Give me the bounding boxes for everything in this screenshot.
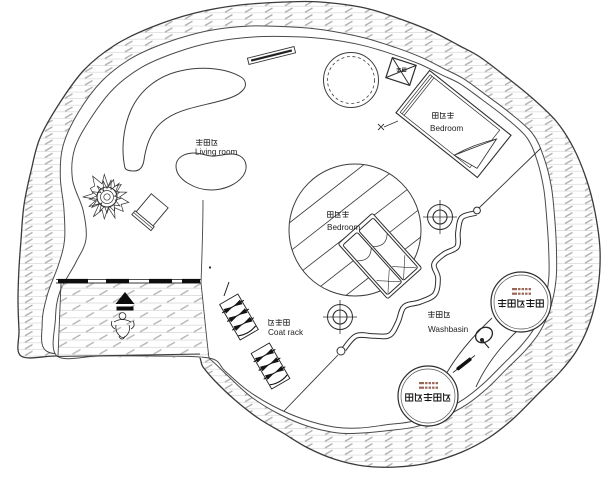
svg-text:Washbasin: Washbasin xyxy=(428,325,469,334)
svg-text:Bedroom: Bedroom xyxy=(327,223,360,232)
svg-text:Coat rack: Coat rack xyxy=(268,328,304,337)
svg-text:Living room: Living room xyxy=(195,148,238,157)
svg-text:Bedroom: Bedroom xyxy=(430,124,463,133)
